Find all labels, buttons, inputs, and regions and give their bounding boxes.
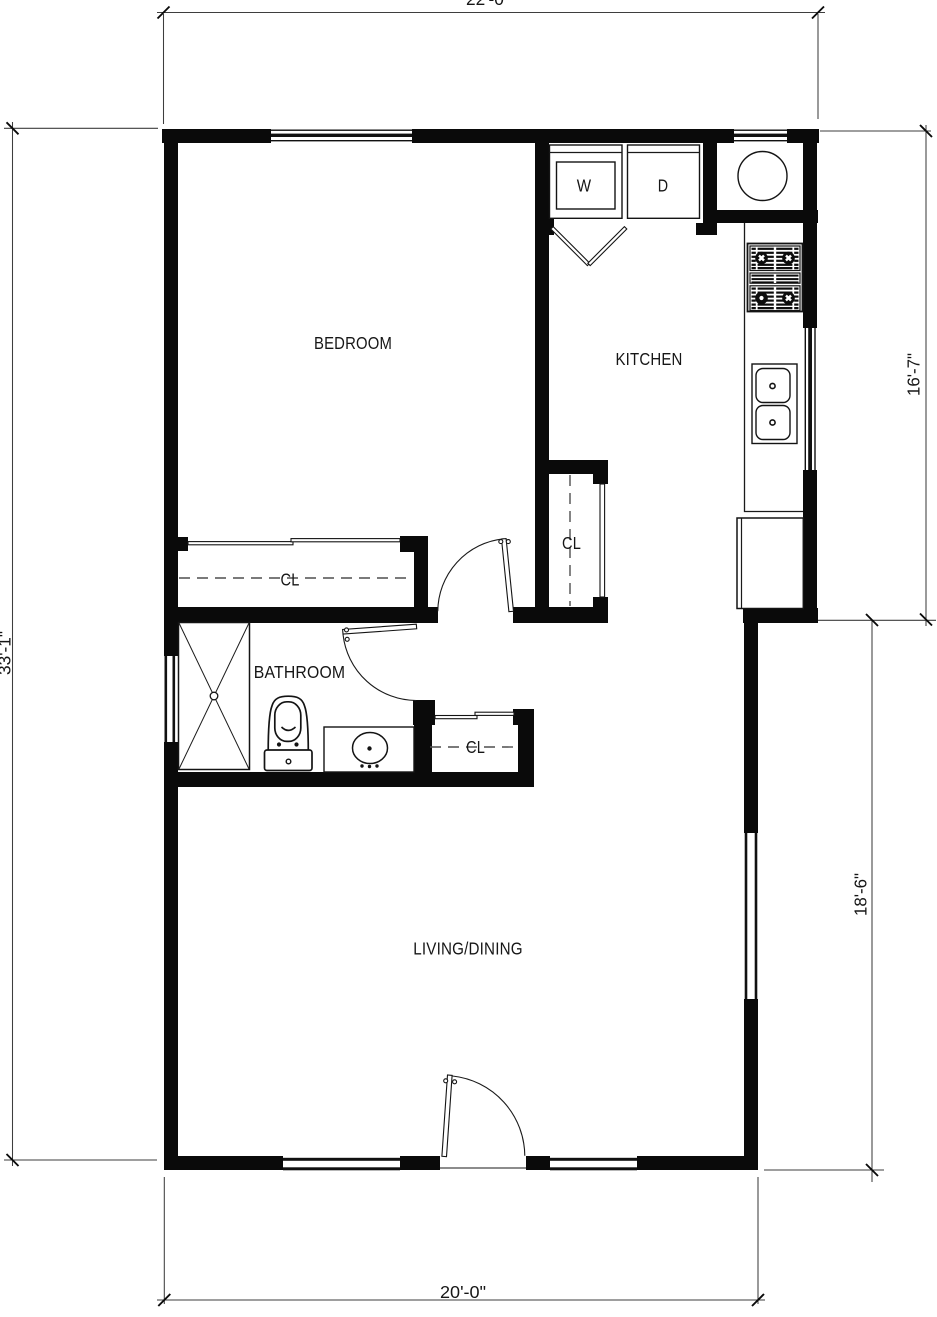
svg-text:BATHROOM: BATHROOM <box>254 662 346 682</box>
svg-text:CL: CL <box>281 570 300 590</box>
svg-text:KITCHEN: KITCHEN <box>616 349 683 369</box>
svg-text:BEDROOM: BEDROOM <box>314 333 392 353</box>
svg-text:16'-7": 16'-7" <box>904 353 924 396</box>
svg-text:CL: CL <box>466 737 485 757</box>
svg-text:W: W <box>577 176 592 196</box>
svg-text:18'-6": 18'-6" <box>851 873 871 916</box>
svg-text:LIVING/DINING: LIVING/DINING <box>413 939 523 959</box>
svg-text:D: D <box>658 176 669 196</box>
svg-text:CL: CL <box>562 533 581 553</box>
svg-text:22'-0": 22'-0" <box>466 0 510 9</box>
svg-text:20'-0": 20'-0" <box>440 1282 486 1302</box>
svg-text:33'-1": 33'-1" <box>0 631 15 675</box>
